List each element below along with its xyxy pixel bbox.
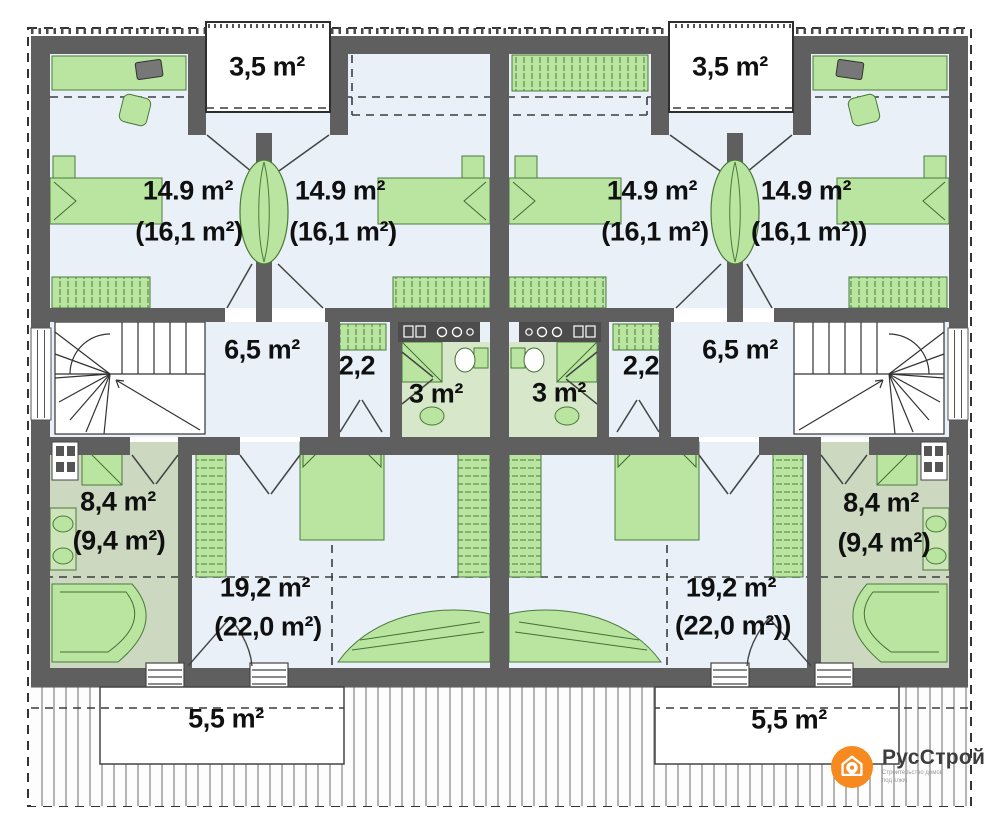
room-area-label: 5,5 m² xyxy=(751,705,827,736)
wardrobe-right-unit xyxy=(512,55,648,91)
room-area-label: 6,5 m² xyxy=(702,335,778,366)
logo-title: РусСтрой xyxy=(882,746,985,769)
logo-tagline-1: Строительство домов xyxy=(882,770,985,777)
room-area-label: (16,1 m²) xyxy=(601,217,708,248)
company-logo: РусСтрой Строительство домов под ключ xyxy=(831,746,985,788)
room-area-label: 14.9 m² xyxy=(295,176,385,207)
room-area-label: 3 m² xyxy=(409,379,463,410)
party-wall xyxy=(490,36,509,687)
floor-plan-page: 3,5 m² 14.9 m² (16,1 m²) 14.9 m² (16,1 m… xyxy=(0,0,1000,825)
room-area-label: (16,1 m²) xyxy=(135,217,242,248)
room-area-label: (9,4 m²) xyxy=(838,528,931,559)
room-area-label: 5,5 m² xyxy=(188,704,264,735)
room-area-label: 8,4 m² xyxy=(843,488,919,519)
appliance-band xyxy=(398,322,480,342)
room-area-label: 14.9 m² xyxy=(143,176,233,207)
plant xyxy=(240,160,288,264)
room-area-label: 14.9 m² xyxy=(761,176,851,207)
room-area-label: 3,5 m² xyxy=(229,52,305,83)
room-area-label: 19,2 m² xyxy=(220,573,310,604)
room-area-label: 14.9 m² xyxy=(607,176,697,207)
room-area-label: 19,2 m² xyxy=(686,573,776,604)
staircase xyxy=(55,322,205,434)
room-area-label: 2,2 xyxy=(623,351,659,382)
logo-text: РусСтрой Строительство домов под ключ xyxy=(882,746,985,785)
logo-house-pin-icon xyxy=(831,746,873,788)
room-area-label: 3 m² xyxy=(532,378,586,409)
room-area-label: (9,4 m²) xyxy=(73,526,166,557)
room-area-label: 6,5 m² xyxy=(224,335,300,366)
floor-plan-drawing xyxy=(0,0,1000,825)
room-area-label: (16,1 m²) xyxy=(289,217,396,248)
room-area-label: (22,0 m²)) xyxy=(675,611,791,642)
room-area-label: 8,4 m² xyxy=(80,487,156,518)
room-area-label: 3,5 m² xyxy=(692,52,768,83)
room-area-label: (16,1 m²)) xyxy=(751,217,867,248)
room-area-label: (22,0 m²) xyxy=(214,612,321,643)
room-area-label: 2,2 xyxy=(339,351,375,382)
logo-tagline-2: под ключ xyxy=(882,778,985,785)
